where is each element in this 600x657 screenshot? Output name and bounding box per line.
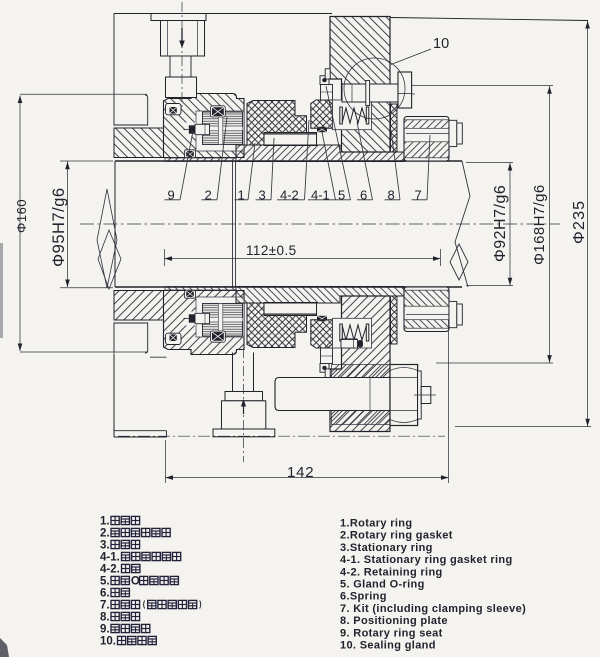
svg-text:8. Positioning plate: 8. Positioning plate: [340, 615, 448, 627]
svg-text:Φ160: Φ160: [14, 199, 29, 233]
svg-text:2.Rotary ring gasket: 2.Rotary ring gasket: [340, 530, 453, 542]
svg-text:Φ235: Φ235: [571, 200, 588, 244]
svg-text:142: 142: [287, 464, 314, 481]
svg-text:Φ168H7/g6: Φ168H7/g6: [531, 184, 548, 265]
svg-text:10: 10: [433, 36, 449, 52]
svg-text:6.: 6.: [100, 588, 110, 600]
svg-text:112±0.5: 112±0.5: [246, 243, 297, 258]
svg-text:8.: 8.: [100, 612, 110, 624]
svg-text:3.Stationary ring: 3.Stationary ring: [340, 542, 433, 554]
svg-text:3.: 3.: [100, 540, 110, 552]
svg-text:Φ92H7/g6: Φ92H7/g6: [492, 185, 509, 262]
svg-text:4-1. Stationary ring gasket ri: 4-1. Stationary ring gasket ring: [340, 554, 513, 566]
svg-text:9. Rotary ring seat: 9. Rotary ring seat: [340, 627, 443, 639]
svg-text:7. Kit (including clamping sle: 7. Kit (including clamping sleeve): [340, 603, 526, 615]
svg-text:10.: 10.: [100, 636, 116, 648]
svg-text:2.: 2.: [100, 528, 110, 540]
svg-text:5.: 5.: [100, 576, 110, 588]
svg-text:Φ95H7/g6: Φ95H7/g6: [50, 187, 68, 267]
svg-text:1.Rotary ring: 1.Rotary ring: [340, 518, 412, 530]
svg-text:9.: 9.: [100, 624, 110, 636]
svg-text:5. Gland O-ring: 5. Gland O-ring: [340, 579, 425, 591]
svg-text:1.: 1.: [100, 516, 110, 528]
svg-text:O: O: [131, 576, 140, 588]
svg-text:6.Spring: 6.Spring: [340, 591, 387, 603]
svg-text:7.: 7.: [100, 600, 110, 612]
svg-text:4-2. Retaining ring: 4-2. Retaining ring: [340, 566, 443, 578]
svg-text:4-2.: 4-2.: [100, 564, 120, 576]
svg-text:4-1.: 4-1.: [100, 552, 120, 564]
svg-text:10. Sealing gland: 10. Sealing gland: [340, 640, 436, 652]
